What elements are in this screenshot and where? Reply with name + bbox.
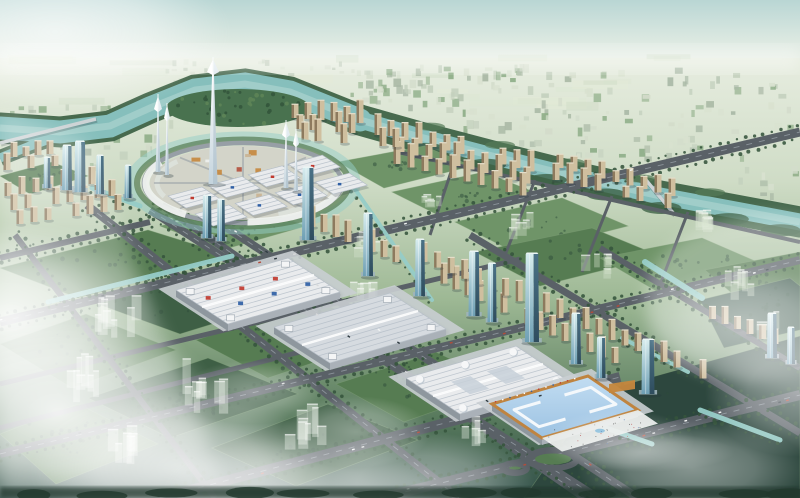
river-island bbox=[166, 89, 310, 127]
horizon-haze bbox=[0, 46, 800, 72]
foreground-tree-band bbox=[0, 487, 800, 498]
aerial-masterplan-rendering: Aerial bird's-eye rendering of a riversi… bbox=[0, 0, 800, 498]
cloud bbox=[545, 432, 735, 472]
masterplan-aerial-view bbox=[0, 0, 800, 498]
cloud bbox=[182, 360, 322, 424]
